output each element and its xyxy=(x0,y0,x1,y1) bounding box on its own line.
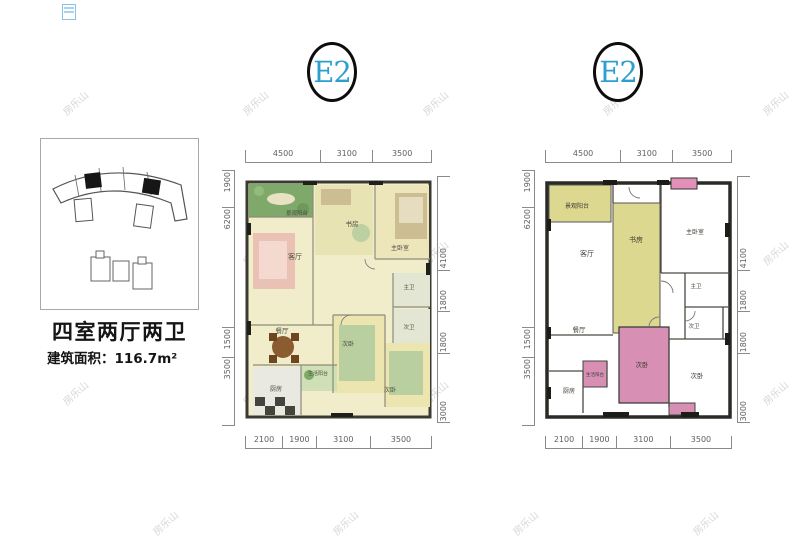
dim-segment: 4500 xyxy=(545,150,620,163)
dim-segment: 3000 xyxy=(437,353,450,423)
dim-label: 1500 xyxy=(524,328,532,350)
right-room-service-balcony: 生活阳台 xyxy=(586,371,604,378)
watermark-text: 房乐山 xyxy=(509,507,541,538)
dim-segment: 1800 xyxy=(737,270,750,312)
site-key-plan-drawing xyxy=(41,139,198,309)
dim-segment: 3500 xyxy=(672,150,732,163)
right-room-balcony: 景观阳台 xyxy=(565,202,589,210)
unit-badge-right-label: E2 xyxy=(599,58,637,87)
right-room-master: 主卧室 xyxy=(686,228,704,236)
dim-segment: 3500 xyxy=(372,150,432,163)
building-area-value: 116.7m² xyxy=(115,351,178,367)
dim-label: 3000 xyxy=(740,400,748,422)
watermark-text: 房乐山 xyxy=(59,377,91,408)
left-plan-dim-right: 4100180018003000 xyxy=(437,176,450,423)
dim-label: 2100 xyxy=(553,436,575,444)
building-area: 建筑面积：116.7m² xyxy=(47,347,177,367)
watermark-text: 房乐山 xyxy=(329,507,361,538)
dim-label: 3100 xyxy=(336,150,358,158)
left-plan-dim-bottom: 2100190031003500 xyxy=(245,436,432,449)
right-floor-plan: 景观阳台 书房 主卧室 客厅 主卫 餐厅 次卧 次卫 次卧 厨房 生活阳台 xyxy=(545,175,732,420)
dim-segment: 4500 xyxy=(245,150,320,163)
right-floor-plan-drawing: 景观阳台 书房 主卧室 客厅 主卫 餐厅 次卧 次卫 次卧 厨房 生活阳台 xyxy=(545,175,732,420)
dim-segment: 3000 xyxy=(737,353,750,423)
dim-label: 1500 xyxy=(224,328,232,350)
dim-segment: 3500 xyxy=(222,357,235,426)
watermark-text: 房乐山 xyxy=(759,237,791,268)
watermark-text: 房乐山 xyxy=(149,507,181,538)
dim-segment: 1500 xyxy=(522,327,535,357)
right-plan-dim-right: 4100180018003000 xyxy=(737,176,750,423)
dim-segment: 1900 xyxy=(522,170,535,207)
left-floor-plan: 景观阳台 书房 主卧室 客厅 主卫 次卫 餐厅 次卧 次卧 厨房 生活阳台 xyxy=(245,175,432,420)
dim-segment: 1900 xyxy=(222,170,235,207)
watermark-text: 房乐山 xyxy=(419,87,451,118)
right-room-dining: 餐厅 xyxy=(573,325,587,334)
watermark-text: 房乐山 xyxy=(689,507,721,538)
dim-label: 4100 xyxy=(440,247,448,269)
dim-label: 2100 xyxy=(253,436,275,444)
dim-segment: 1800 xyxy=(437,311,450,353)
right-room-bedroom2: 次卧 xyxy=(636,360,650,369)
dim-segment: 2100 xyxy=(245,436,282,449)
left-room-living: 客厅 xyxy=(288,252,302,261)
left-plan-dim-top: 450031003500 xyxy=(245,150,432,163)
watermark-text: 房乐山 xyxy=(759,87,791,118)
right-room-master-bath: 主卫 xyxy=(690,282,702,290)
dim-label: 1800 xyxy=(740,289,748,311)
right-plan-dim-left: 1900620015003500 xyxy=(522,170,535,426)
dim-segment: 3500 xyxy=(522,357,535,426)
left-room-master: 主卧室 xyxy=(391,244,409,252)
dim-label: 6200 xyxy=(524,208,532,230)
left-room-bedroom2: 次卧 xyxy=(342,340,354,348)
dim-segment: 3500 xyxy=(370,436,432,449)
unit-badge-left-label: E2 xyxy=(313,58,351,87)
left-room-study: 书房 xyxy=(346,219,359,228)
unit-badge-left: E2 xyxy=(307,42,357,102)
right-room-bedroom3: 次卧 xyxy=(691,371,705,380)
watermark-text: 房乐山 xyxy=(239,87,271,118)
site-key-plan xyxy=(40,138,199,310)
dim-label: 3500 xyxy=(224,358,232,380)
dim-segment: 4100 xyxy=(437,176,450,270)
right-room-living: 客厅 xyxy=(580,249,594,258)
dim-label: 4500 xyxy=(272,150,294,158)
dim-label: 1800 xyxy=(440,331,448,353)
right-room-study: 书房 xyxy=(629,235,643,244)
watermark-text: 房乐山 xyxy=(59,87,91,118)
dim-label: 3500 xyxy=(690,436,712,444)
dim-label: 3100 xyxy=(332,436,354,444)
dim-label: 3500 xyxy=(390,436,412,444)
left-room-balcony: 景观阳台 xyxy=(286,209,309,217)
dim-segment: 6200 xyxy=(222,207,235,327)
dim-label: 3500 xyxy=(524,358,532,380)
dim-segment: 1900 xyxy=(582,436,616,449)
dim-label: 3500 xyxy=(691,150,713,158)
right-plan-dim-bottom: 2100190031003500 xyxy=(545,436,732,449)
dim-segment: 3100 xyxy=(320,150,372,163)
left-room-dining: 餐厅 xyxy=(276,326,290,335)
dim-label: 1900 xyxy=(224,171,232,193)
dim-segment: 3100 xyxy=(620,150,672,163)
dim-segment: 3100 xyxy=(316,436,370,449)
dim-segment: 3100 xyxy=(616,436,670,449)
dim-segment: 3500 xyxy=(670,436,732,449)
dim-segment: 1900 xyxy=(282,436,316,449)
dim-label: 1800 xyxy=(440,289,448,311)
left-room-service-balcony: 生活阳台 xyxy=(308,370,328,377)
right-room-bath2: 次卫 xyxy=(688,322,700,330)
dim-label: 3100 xyxy=(632,436,654,444)
left-floor-plan-drawing: 景观阳台 书房 主卧室 客厅 主卫 次卫 餐厅 次卧 次卧 厨房 生活阳台 xyxy=(245,175,432,420)
right-plan-dim-top: 450031003500 xyxy=(545,150,732,163)
dim-label: 3100 xyxy=(636,150,658,158)
dim-segment: 1500 xyxy=(222,327,235,357)
layout-title: 四室两厅两卫 xyxy=(52,316,187,346)
left-room-bedroom3: 次卧 xyxy=(384,386,396,394)
dim-label: 1900 xyxy=(524,171,532,193)
dim-label: 6200 xyxy=(224,208,232,230)
dim-segment: 1800 xyxy=(437,270,450,312)
dim-segment: 1800 xyxy=(737,311,750,353)
dim-label: 1900 xyxy=(288,436,310,444)
left-room-kitchen: 厨房 xyxy=(270,385,282,393)
dim-label: 3500 xyxy=(391,150,413,158)
dim-label: 1800 xyxy=(740,331,748,353)
dim-segment: 4100 xyxy=(737,176,750,270)
dim-label: 4500 xyxy=(572,150,594,158)
corner-logo-icon xyxy=(62,4,76,20)
left-room-bath2: 次卫 xyxy=(403,323,415,331)
dim-segment: 6200 xyxy=(522,207,535,327)
dim-label: 1900 xyxy=(588,436,610,444)
left-plan-dim-left: 1900620015003500 xyxy=(222,170,235,426)
dim-segment: 2100 xyxy=(545,436,582,449)
dim-label: 4100 xyxy=(740,247,748,269)
right-room-kitchen: 厨房 xyxy=(563,387,575,395)
watermark-text: 房乐山 xyxy=(759,377,791,408)
dim-label: 3000 xyxy=(440,400,448,422)
building-area-label: 建筑面积： xyxy=(47,351,115,367)
left-room-master-bath: 主卫 xyxy=(403,283,415,291)
unit-badge-right: E2 xyxy=(593,42,643,102)
